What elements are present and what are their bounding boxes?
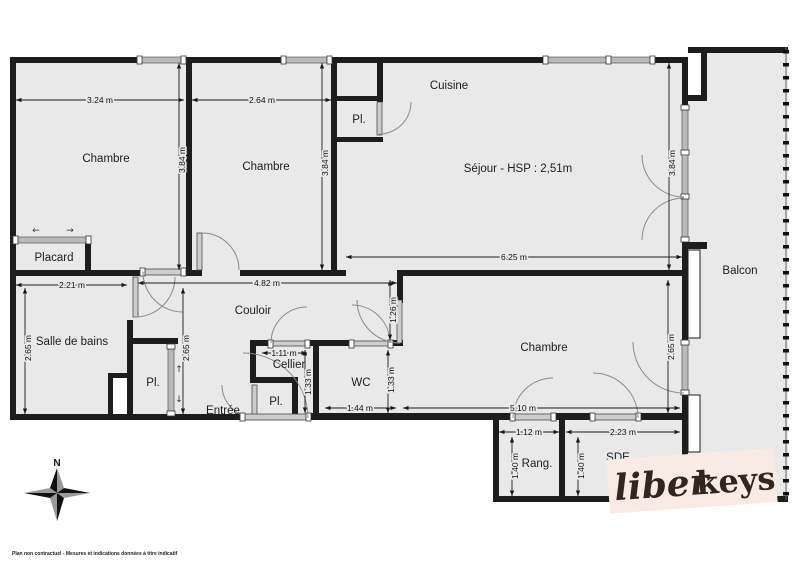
window-living-fixed — [682, 107, 688, 152]
room-label-kitchen: Cuisine — [430, 80, 468, 92]
room-label-wc: WC — [351, 377, 370, 389]
window-bedroom3-door — [682, 342, 688, 393]
door-bedroom2 — [197, 233, 202, 270]
dim-label-1-11: 1.11 m — [271, 348, 296, 358]
door-closet-kitchen — [377, 102, 382, 135]
slide-arrow-right-icon: → — [66, 226, 74, 236]
room-label-bathroom: Salle de bains — [36, 336, 108, 348]
dim-label-6-25: 6.25 m — [501, 252, 527, 262]
door-storage — [513, 414, 553, 420]
dim-label-3-84-c: 3.84 m — [667, 150, 677, 176]
door-closet-bath-sliding — [168, 346, 174, 414]
window-kitchen — [545, 57, 653, 63]
floor-plan-page: ← → ↑ ↓ — [0, 0, 800, 566]
dim-label-1-26: 1.26 m — [388, 297, 398, 323]
room-label-bedroom-2: Chambre — [242, 161, 289, 173]
dim-label-2-21: 2.21 m — [59, 280, 85, 290]
room-label-hallway: Couloir — [235, 305, 272, 317]
compass-north-label: N — [53, 458, 60, 469]
room-label-closet-bath: Pl. — [146, 377, 159, 389]
slide-arrow-down-icon: ↓ — [175, 395, 183, 405]
window-bedroom1 — [140, 57, 184, 63]
door-pantry — [271, 341, 307, 346]
dim-label-2-23: 2.23 m — [610, 427, 636, 437]
room-label-bedroom-3: Chambre — [520, 342, 567, 354]
room-label-entry: Entrée — [206, 405, 240, 417]
dim-label-1-33-a: 1.33 m — [303, 369, 313, 395]
compass-icon: N — [24, 458, 90, 521]
room-label-placard: Placard — [35, 252, 74, 264]
slide-arrow-up-icon: ↑ — [175, 365, 183, 375]
dim-label-3-84-a: 3.84 m — [177, 147, 187, 173]
door-shower-room — [593, 414, 638, 420]
dim-label-2-64: 2.64 m — [249, 95, 275, 105]
disclaimer-text: Plan non contractuel - Mesures et indica… — [12, 551, 178, 557]
door-closet-entry — [252, 385, 257, 417]
door-wc — [352, 341, 390, 346]
logo-bold-text: keys — [695, 459, 777, 502]
dim-label-2-65-a: 2.65 m — [23, 335, 33, 361]
dim-label-3-84-b: 3.84 m — [320, 150, 330, 176]
dim-label-1-12: 1.12 m — [516, 427, 542, 437]
floor-plan-svg: ← → ↑ ↓ — [0, 0, 800, 566]
room-label-bedroom-1: Chambre — [82, 153, 129, 165]
room-label-balcony: Balcon — [722, 265, 757, 277]
dim-label-2-65-c: 2.65 m — [666, 334, 676, 360]
placard-sliding-door — [15, 237, 88, 243]
door-bedroom1 — [143, 269, 183, 275]
window-bedroom2 — [283, 57, 331, 63]
dim-label-4-82: 4.82 m — [254, 278, 280, 288]
room-label-living: Séjour - HSP : 2,51m — [464, 163, 572, 175]
apartment-floor — [10, 57, 688, 420]
front-door — [243, 414, 308, 420]
dim-label-1-44: 1.44 m — [347, 403, 373, 413]
door-bathroom — [133, 277, 138, 317]
dim-label-2-65-b: 2.65 m — [181, 335, 191, 361]
room-label-closet-kitchen: Pl. — [352, 114, 365, 126]
room-label-pantry: Cellier — [273, 359, 306, 371]
dim-label-1-40-b: 1.40 m — [576, 453, 586, 479]
dim-label-5-10: 5.10 m — [510, 403, 536, 413]
room-label-storage: Rang. — [522, 458, 553, 470]
dim-label-1-33-b: 1.33 m — [386, 367, 396, 393]
room-label-closet-entry: Pl. — [269, 396, 282, 408]
dim-label-1-40-a: 1.40 m — [510, 453, 520, 479]
dim-label-3-24: 3.24 m — [87, 95, 113, 105]
slide-arrow-left-icon: ← — [32, 226, 40, 236]
